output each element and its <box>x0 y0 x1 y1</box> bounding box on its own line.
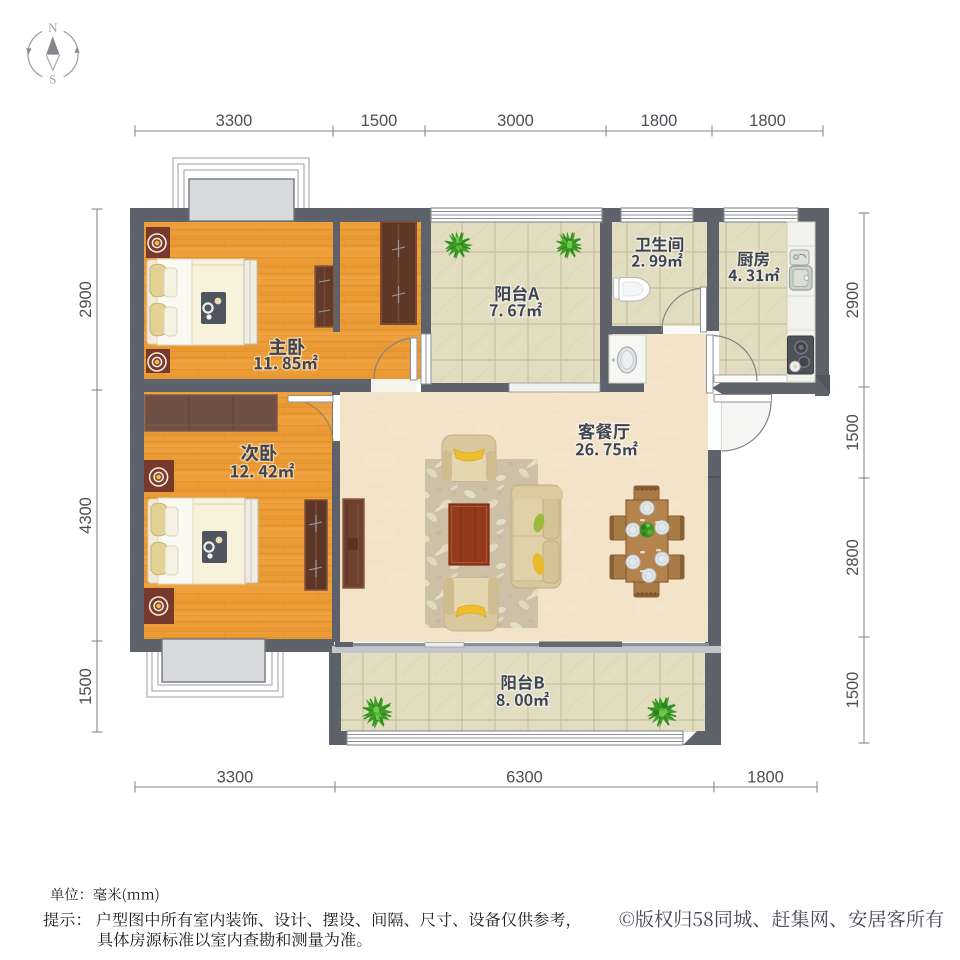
svg-text:6300: 6300 <box>506 769 543 787</box>
svg-text:1500: 1500 <box>844 672 862 709</box>
svg-text:3300: 3300 <box>216 112 253 130</box>
svg-text:1500: 1500 <box>77 668 95 705</box>
svg-text:1800: 1800 <box>749 112 786 130</box>
svg-text:2800: 2800 <box>844 539 862 576</box>
svg-text:2900: 2900 <box>77 281 95 318</box>
svg-text:1800: 1800 <box>747 769 784 787</box>
svg-text:1800: 1800 <box>641 112 678 130</box>
svg-text:S: S <box>49 72 56 87</box>
svg-text:3300: 3300 <box>217 769 254 787</box>
svg-text:4300: 4300 <box>77 497 95 534</box>
svg-text:3000: 3000 <box>497 112 534 130</box>
svg-text:1500: 1500 <box>361 112 398 130</box>
svg-text:2900: 2900 <box>844 282 862 319</box>
svg-text:N: N <box>48 20 58 35</box>
svg-text:1500: 1500 <box>844 414 862 451</box>
